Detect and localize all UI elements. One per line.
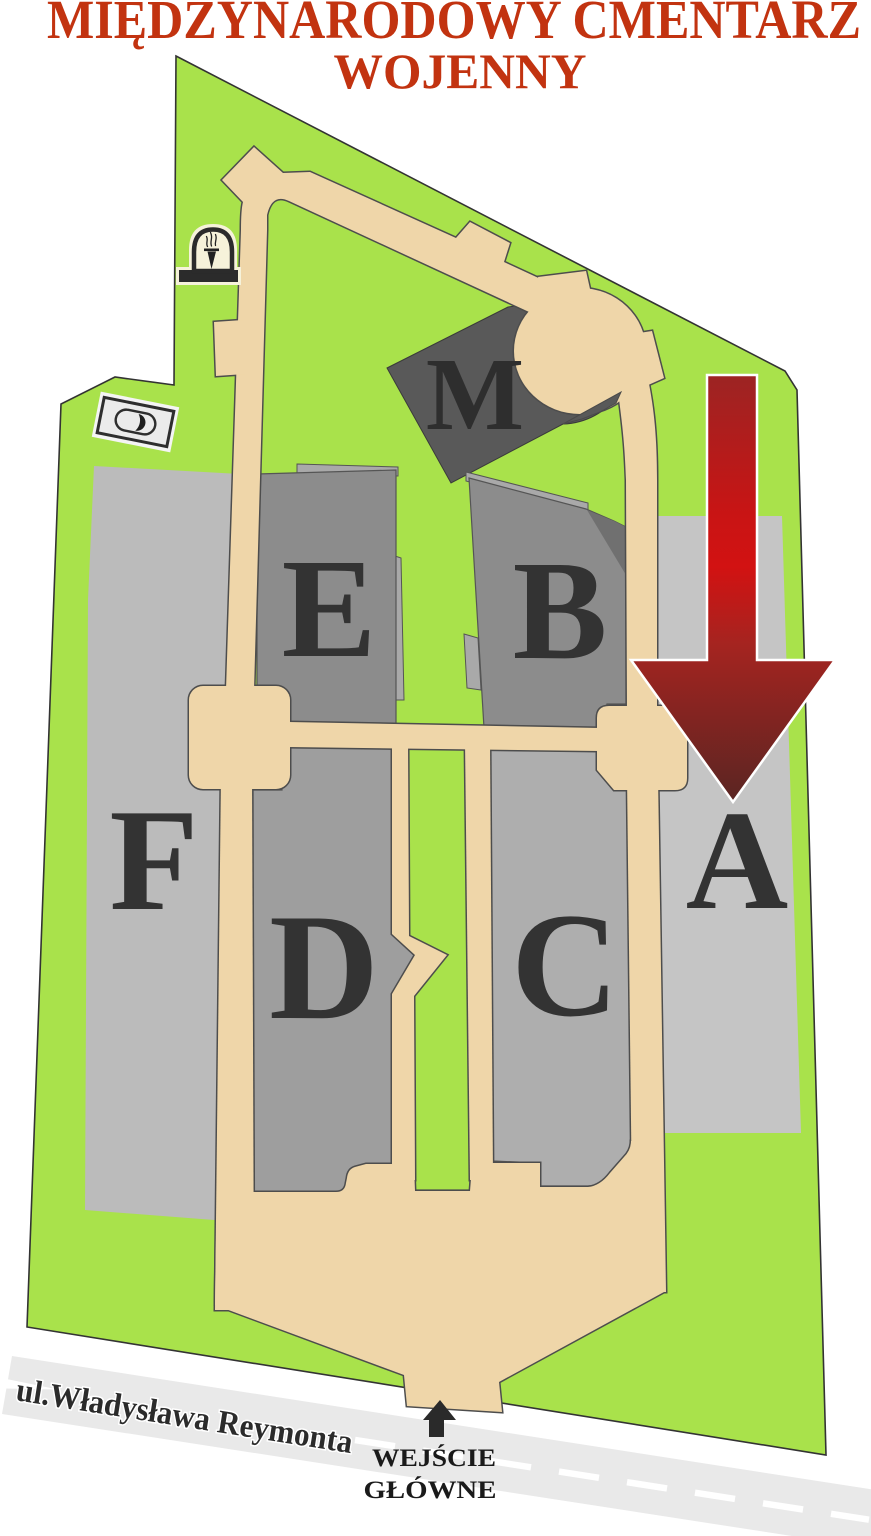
svg-text:GŁÓWNE: GŁÓWNE (364, 1476, 497, 1504)
svg-text:D: D (269, 883, 379, 1051)
svg-text:C: C (511, 883, 619, 1048)
svg-text:B: B (513, 531, 608, 689)
svg-text:E: E (282, 529, 377, 687)
svg-text:F: F (109, 779, 198, 941)
svg-text:A: A (686, 781, 789, 939)
svg-text:WEJŚCIE: WEJŚCIE (372, 1444, 496, 1472)
svg-text:WOJENNY: WOJENNY (334, 43, 587, 99)
svg-text:M: M (426, 337, 524, 452)
